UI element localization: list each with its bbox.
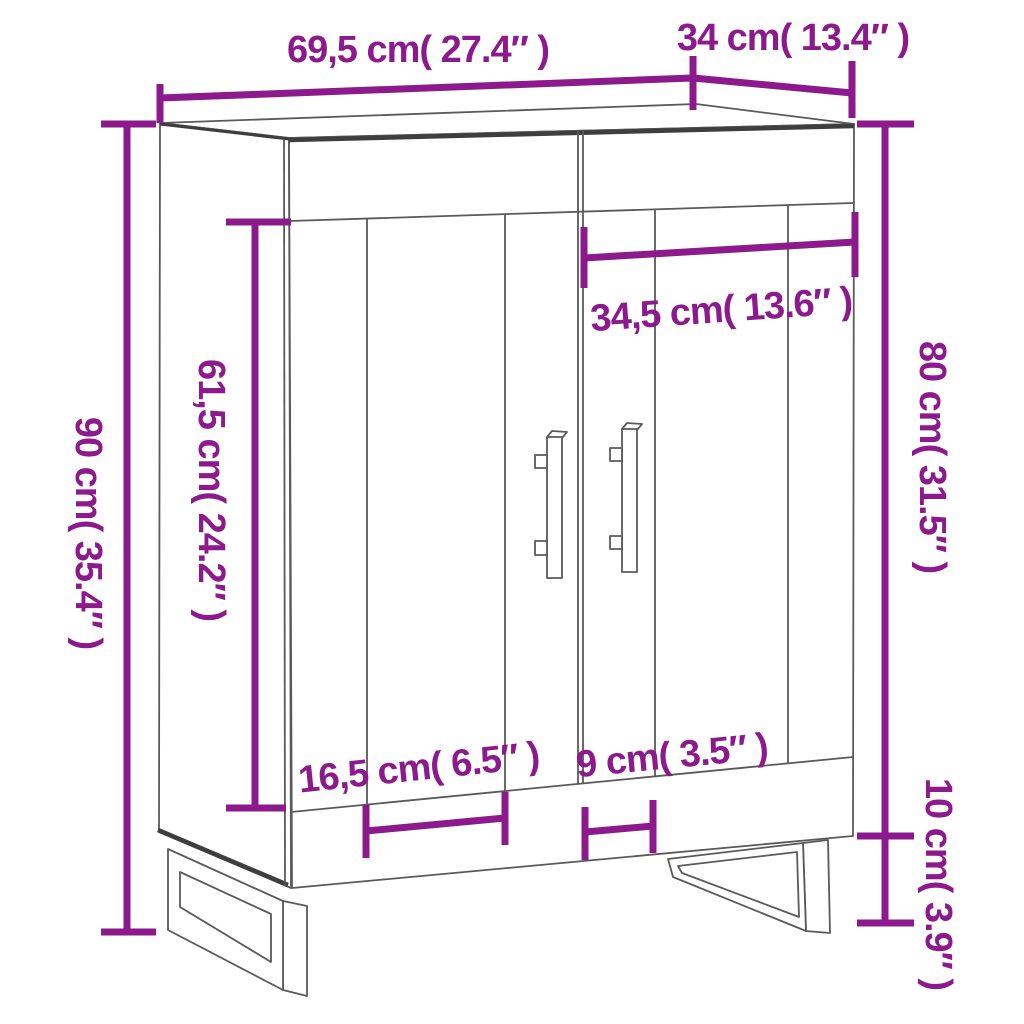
- dim-line: [160, 78, 693, 98]
- right-leg-side: [803, 840, 830, 933]
- left-handle-bar: [547, 437, 562, 578]
- right-handle-stem-top: [610, 448, 622, 461]
- right-handle-stem-bottom: [610, 536, 622, 549]
- dim-door-height-label: 61,5 cm( 24.2″ ): [190, 359, 232, 621]
- dim-height-label: 90 cm( 35.4″ ): [67, 417, 109, 649]
- dimension-diagram: 69,5 cm( 27.4″ ) 34 cm( 13.4″ ) 90 cm( 3…: [0, 0, 1024, 1024]
- left-handle-stem-bottom: [535, 541, 547, 555]
- dim-leg-height-label: 10 cm( 3.9″ ): [917, 778, 959, 990]
- dim-depth-label: 34 cm( 13.4″ ): [677, 17, 909, 59]
- left-handle-stem-top: [535, 455, 547, 468]
- left-leg-side: [283, 901, 307, 996]
- dim-body-height: 80 cm( 31.5″ ): [857, 124, 953, 836]
- right-handle-bar: [622, 429, 637, 572]
- diagram-canvas: 69,5 cm( 27.4″ ) 34 cm( 13.4″ ) 90 cm( 3…: [0, 0, 1024, 1024]
- dim-width-label: 69,5 cm( 27.4″ ): [287, 29, 549, 71]
- front-left-inner-edge: [284, 140, 285, 886]
- dim-leg-height: 10 cm( 3.9″ ): [857, 778, 959, 990]
- dim-depth: 34 cm( 13.4″ ): [677, 17, 909, 118]
- right-leg: [668, 840, 830, 933]
- cabinet-drawing: [158, 104, 854, 996]
- dim-body-height-label: 80 cm( 31.5″ ): [911, 341, 953, 573]
- dim-height: 90 cm( 35.4″ ): [67, 124, 156, 932]
- dim-line: [693, 78, 852, 93]
